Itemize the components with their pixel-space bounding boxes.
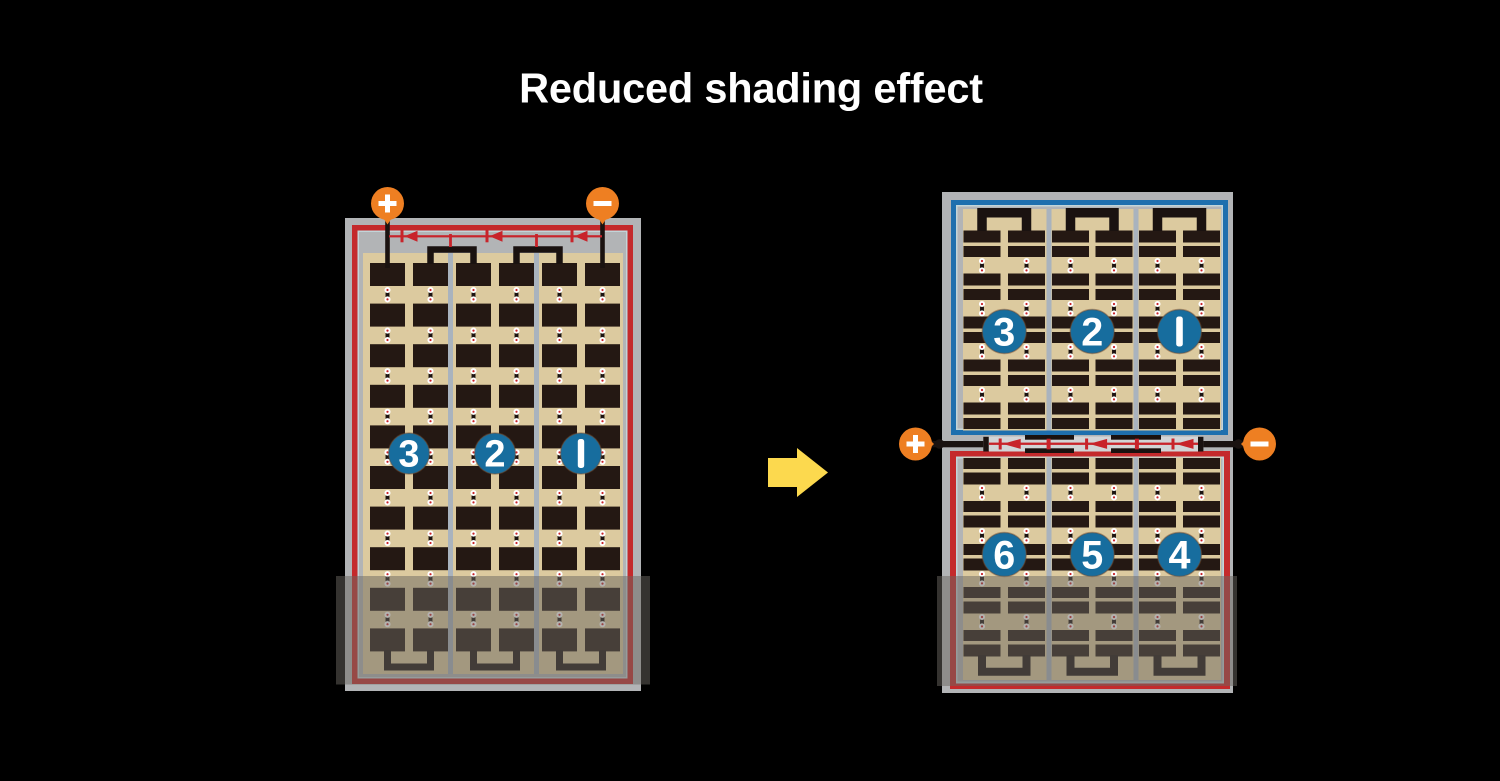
svg-text:3: 3 (993, 311, 1015, 355)
svg-text:3: 3 (398, 434, 419, 476)
svg-text:Reduced shading effect: Reduced shading effect (519, 65, 983, 112)
svg-text:4: 4 (1169, 534, 1191, 578)
svg-text:6: 6 (993, 534, 1015, 578)
svg-text:2: 2 (1081, 311, 1103, 355)
svg-text:5: 5 (1081, 534, 1103, 578)
svg-text:2: 2 (484, 434, 505, 476)
